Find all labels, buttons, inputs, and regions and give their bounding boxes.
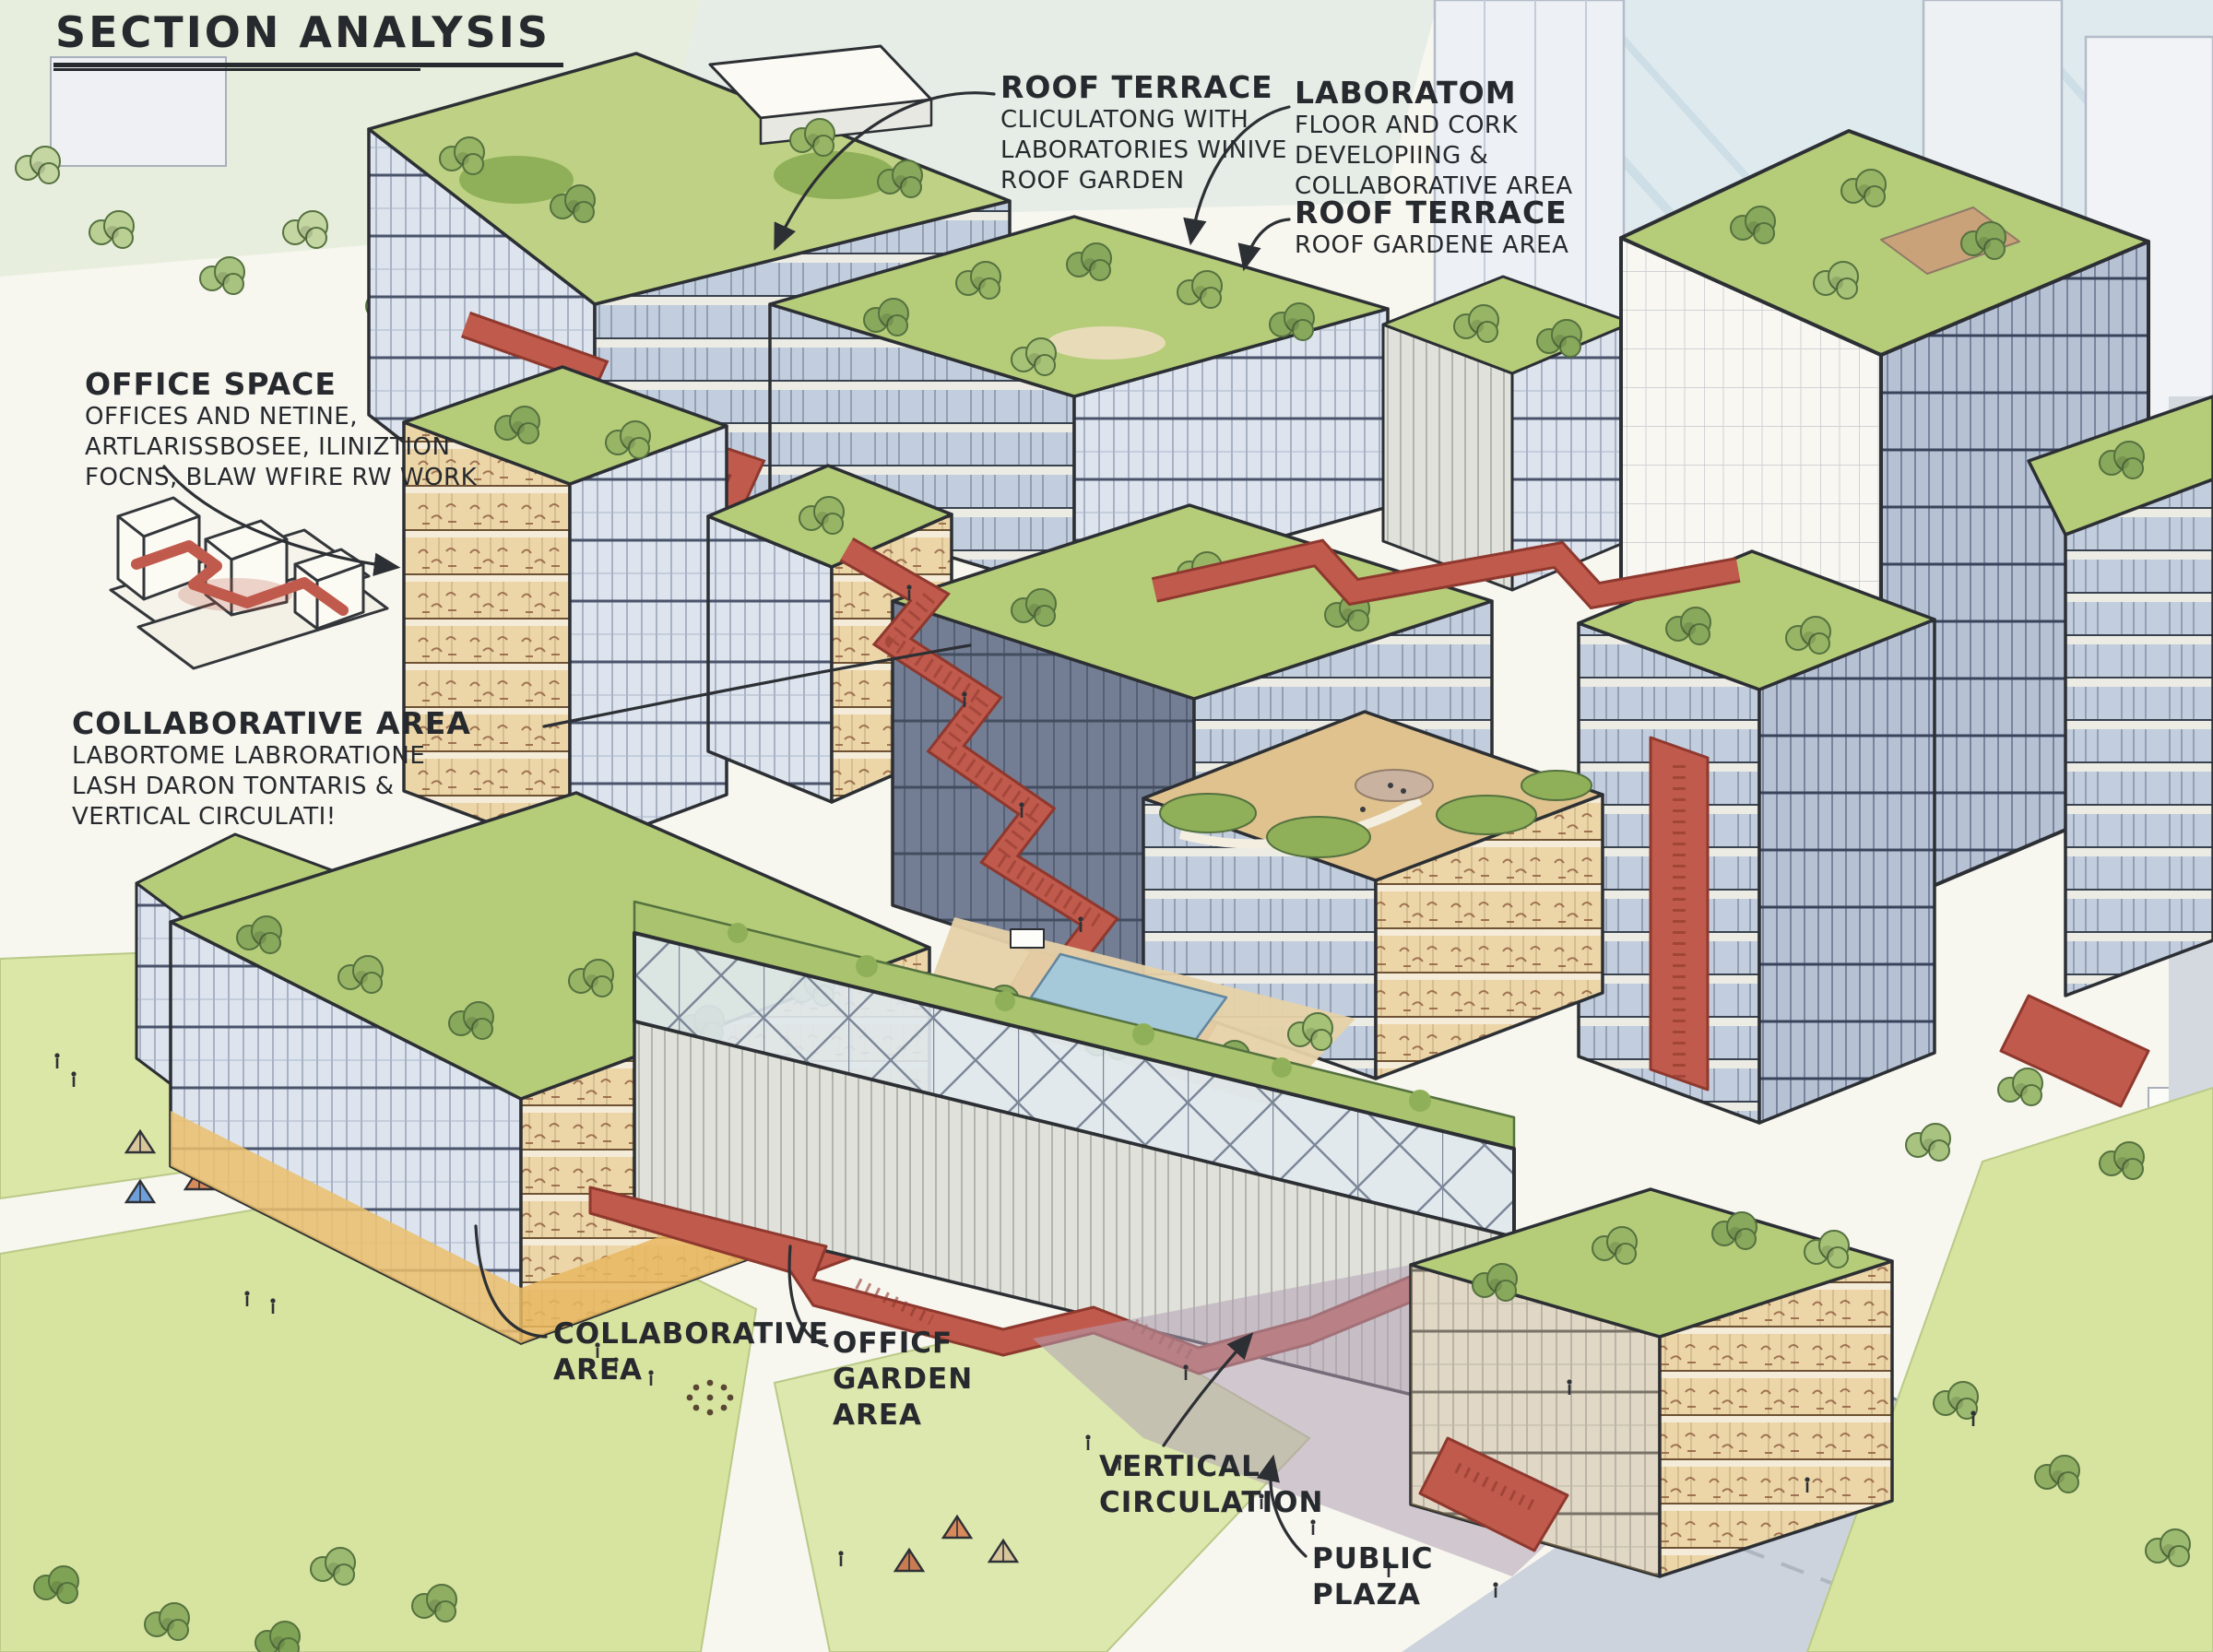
title-underline <box>53 68 420 71</box>
annotation-laboratom: LABORATOM FLOOR AND CORK DEVELOPIING & C… <box>1295 76 1573 203</box>
annotation-line: ARTLARISSBOSEE, ILINIZTION <box>85 432 477 463</box>
annotation-line: VERTICAL CIRCULATI! <box>72 802 471 832</box>
annotation-line: FOCNS, BLAW WFIRE RW WORK <box>85 463 477 493</box>
annotation-line: PLAZA <box>1312 1577 1434 1613</box>
building-right-mid-tower <box>1579 551 1935 1123</box>
annotation-line: OFFICES AND NETINE, <box>85 402 477 432</box>
annotation-line: AREA <box>833 1398 973 1434</box>
annotation-office-garden: OFFICF GARDEN AREA <box>833 1326 973 1433</box>
annotation-line: GARDEN <box>833 1362 973 1398</box>
annotation-line: CIRCULATION <box>1099 1485 1323 1521</box>
building-infill <box>1383 277 1632 590</box>
annotation-public-plaza: PUBLIC PLAZA <box>1312 1541 1434 1613</box>
section-analysis-drawing: SECTION ANALYSIS ROOF TERRACE CLICULATON… <box>0 0 2213 1652</box>
annotation-collaborative-bottom: COLLABORATIVE AREA <box>553 1316 829 1388</box>
annotation-line: DEVELOPIING & <box>1295 141 1573 171</box>
annotation-line: OFFICF <box>833 1326 973 1362</box>
annotation-heading: OFFICE SPACE <box>85 367 477 402</box>
annotation-line: COLLABORATIVE <box>553 1316 829 1352</box>
annotation-line: PUBLIC <box>1312 1541 1434 1577</box>
annotation-line: CLICULATONG WITH <box>1000 105 1287 136</box>
annotation-line: ROOF GARDENE AREA <box>1295 230 1568 261</box>
annotation-collaborative-left: COLLABORATIVE AREA LABORTOME LABRORATION… <box>72 706 471 833</box>
annotation-heading: COLLABORATIVE AREA <box>72 706 471 741</box>
page-title: SECTION ANALYSIS <box>53 7 563 67</box>
annotation-heading: ROOF TERRACE <box>1295 195 1568 230</box>
annotation-line: AREA <box>553 1352 829 1388</box>
annotation-vertical-circulation: VERTICAL CIRCULATION <box>1099 1449 1323 1521</box>
annotation-heading: LABORATOM <box>1295 76 1573 111</box>
annotation-heading: ROOF TERRACE <box>1000 70 1287 105</box>
annotation-office-space: OFFICE SPACE OFFICES AND NETINE, ARTLARI… <box>85 367 477 494</box>
annotation-line: LASH DARON TONTARIS & <box>72 772 471 802</box>
annotation-roof-terrace-right: ROOF TERRACE ROOF GARDENE AREA <box>1295 195 1568 261</box>
annotation-line: LABORTOME LABRORATIONE <box>72 741 471 772</box>
annotation-line: FLOOR AND CORK <box>1295 111 1573 141</box>
annotation-roof-terrace-top: ROOF TERRACE CLICULATONG WITH LABORATORI… <box>1000 70 1287 197</box>
annotation-line: VERTICAL <box>1099 1449 1323 1485</box>
annotation-line: ROOF GARDEN <box>1000 166 1287 196</box>
annotation-line: LABORATORIES WINIVE <box>1000 136 1287 166</box>
